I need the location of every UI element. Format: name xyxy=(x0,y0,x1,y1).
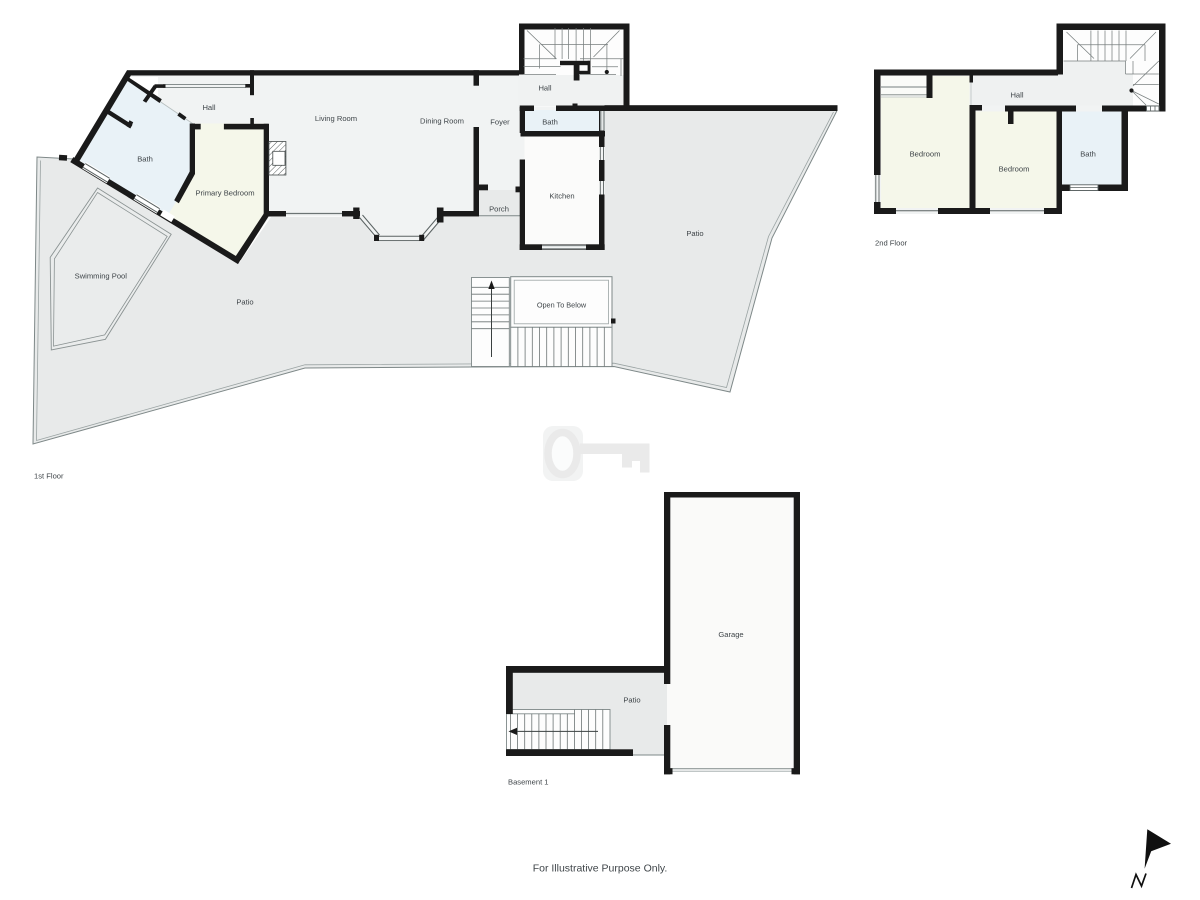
svg-text:Bedroom: Bedroom xyxy=(910,150,941,159)
svg-text:Kitchen: Kitchen xyxy=(549,192,574,201)
svg-text:Patio: Patio xyxy=(686,229,703,238)
svg-text:Garage: Garage xyxy=(718,630,743,639)
svg-text:Primary Bedroom: Primary Bedroom xyxy=(195,189,254,198)
svg-text:Patio: Patio xyxy=(623,696,640,705)
svg-text:Living Room: Living Room xyxy=(315,114,357,123)
svg-text:Bath: Bath xyxy=(542,118,558,127)
svg-text:Open To Below: Open To Below xyxy=(537,301,587,310)
svg-text:Basement 1: Basement 1 xyxy=(508,778,549,787)
svg-text:Porch: Porch xyxy=(489,205,509,214)
svg-text:Bedroom: Bedroom xyxy=(999,165,1030,174)
svg-text:Dining Room: Dining Room xyxy=(420,117,464,126)
svg-text:Bath: Bath xyxy=(1080,150,1096,159)
svg-text:Patio: Patio xyxy=(236,298,253,307)
svg-text:Swimming Pool: Swimming Pool xyxy=(75,272,128,281)
svg-text:Hall: Hall xyxy=(202,103,215,112)
svg-text:2nd Floor: 2nd Floor xyxy=(875,239,908,248)
svg-text:Hall: Hall xyxy=(1010,91,1023,100)
svg-text:Foyer: Foyer xyxy=(490,118,510,127)
svg-text:Bath: Bath xyxy=(137,155,153,164)
svg-text:For Illustrative Purpose Only.: For Illustrative Purpose Only. xyxy=(533,863,668,875)
svg-text:1st Floor: 1st Floor xyxy=(34,472,64,481)
svg-text:Hall: Hall xyxy=(538,84,551,93)
